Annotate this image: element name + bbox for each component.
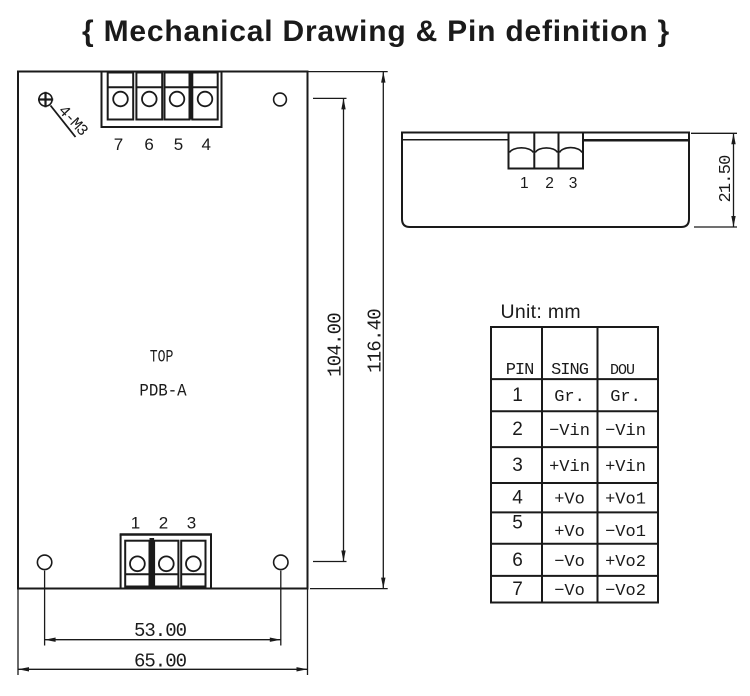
- svg-text:4: 4: [201, 135, 210, 154]
- svg-text:−Vo: −Vo: [554, 553, 585, 572]
- svg-text:−Vo2: −Vo2: [605, 582, 646, 601]
- svg-text:6: 6: [512, 550, 523, 571]
- svg-text:116.40: 116.40: [365, 309, 387, 373]
- svg-text:7: 7: [114, 135, 123, 154]
- svg-text:21.50: 21.50: [717, 155, 736, 203]
- svg-text:7: 7: [512, 579, 523, 600]
- svg-text:3: 3: [512, 455, 523, 476]
- svg-text:+Vo1: +Vo1: [605, 491, 646, 510]
- svg-text:2: 2: [545, 175, 554, 192]
- svg-text:104.00: 104.00: [325, 313, 347, 377]
- svg-text:PDB-A: PDB-A: [139, 382, 187, 402]
- svg-text:Unit: mm: Unit: mm: [501, 301, 581, 323]
- svg-text:−Vin: −Vin: [605, 422, 646, 441]
- svg-text:Gr.: Gr.: [554, 388, 585, 407]
- svg-text:2: 2: [512, 419, 523, 440]
- svg-text:65.00: 65.00: [134, 651, 187, 673]
- svg-text:2: 2: [159, 514, 168, 533]
- svg-text:+Vin: +Vin: [605, 458, 646, 477]
- svg-text:+Vo: +Vo: [554, 491, 585, 510]
- svg-text:TOP: TOP: [150, 347, 174, 368]
- svg-text:3: 3: [187, 514, 196, 533]
- svg-text:DOU: DOU: [610, 362, 634, 379]
- svg-text:1: 1: [131, 514, 140, 533]
- svg-text:+Vo: +Vo: [554, 523, 585, 542]
- svg-text:6: 6: [144, 135, 153, 154]
- svg-text:5: 5: [174, 135, 183, 154]
- svg-text:1: 1: [520, 175, 529, 192]
- svg-text:−Vin: −Vin: [549, 422, 590, 441]
- svg-text:+Vo2: +Vo2: [605, 553, 646, 572]
- svg-text:53.00: 53.00: [134, 620, 187, 642]
- svg-text:−Vo1: −Vo1: [605, 523, 646, 542]
- svg-text:3: 3: [569, 175, 578, 192]
- svg-text:+Vin: +Vin: [549, 458, 590, 477]
- svg-text:−Vo: −Vo: [554, 582, 585, 601]
- svg-text:{ Mechanical Drawing & Pin def: { Mechanical Drawing & Pin definition }: [82, 15, 670, 48]
- svg-text:1: 1: [512, 385, 523, 406]
- svg-text:PIN: PIN: [506, 361, 534, 380]
- svg-text:4: 4: [512, 488, 523, 509]
- svg-text:5: 5: [512, 513, 523, 534]
- svg-text:SING: SING: [551, 361, 589, 380]
- svg-text:Gr.: Gr.: [610, 388, 641, 407]
